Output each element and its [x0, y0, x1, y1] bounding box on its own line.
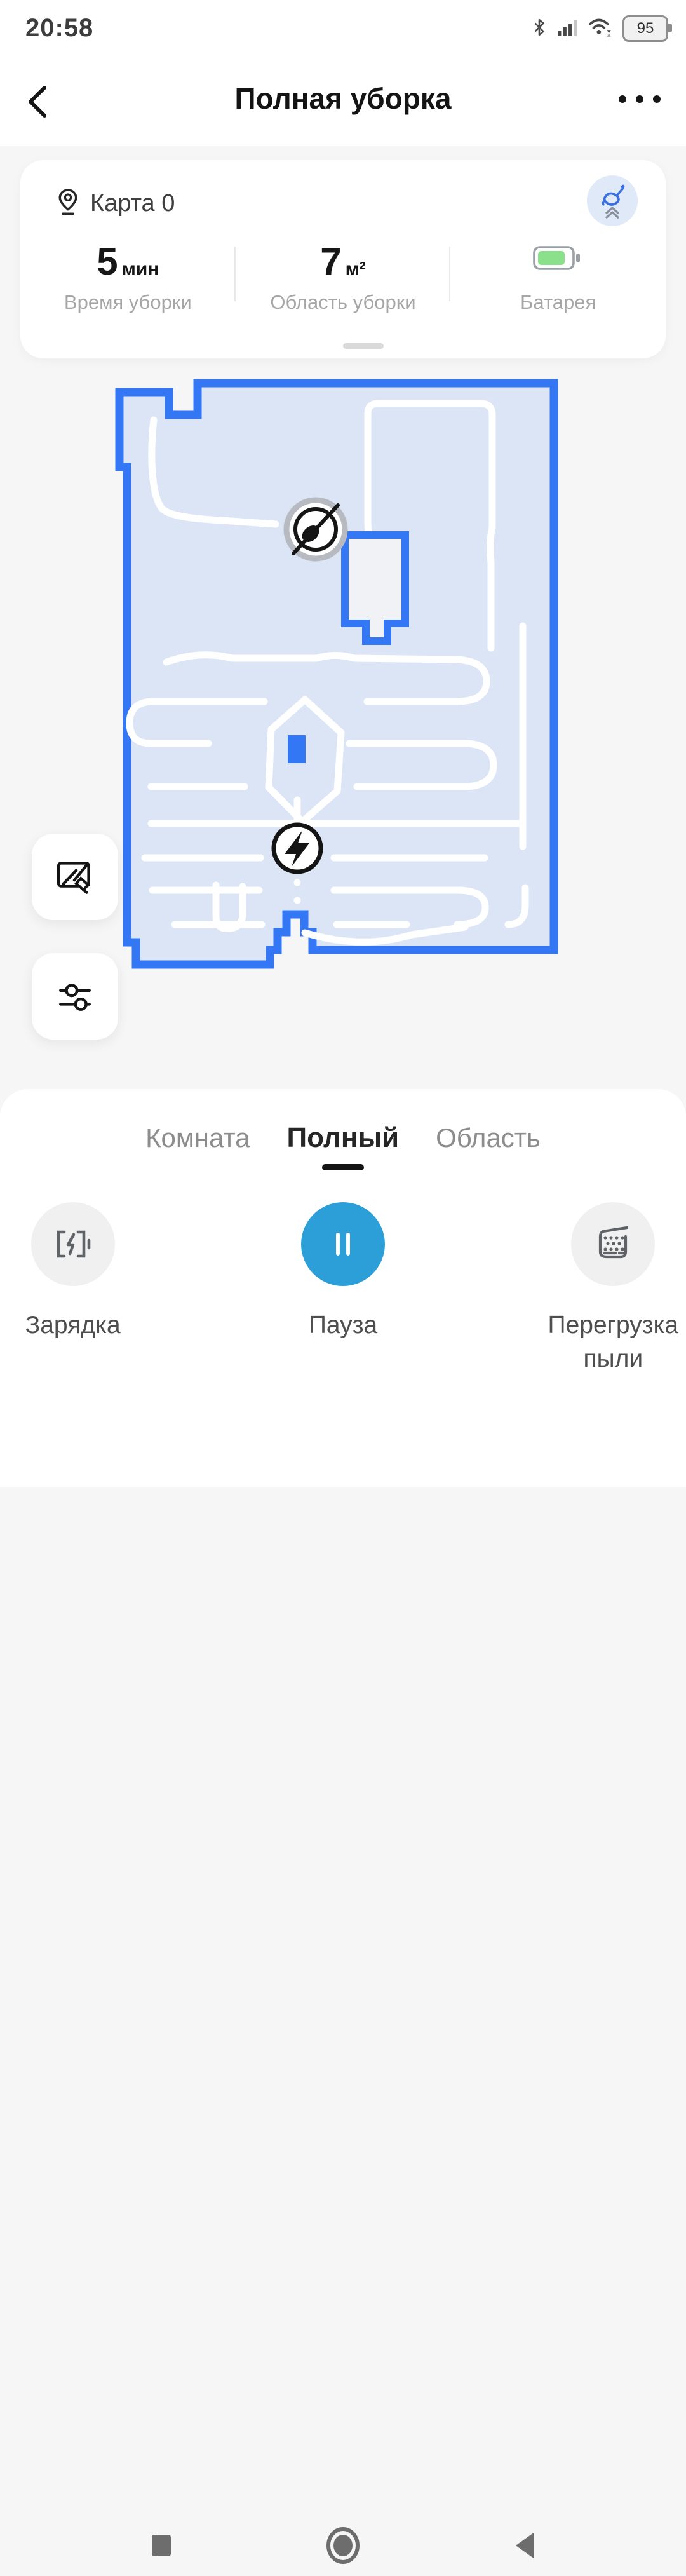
clock: 20:58: [25, 14, 93, 43]
android-navbar: [0, 2515, 686, 2576]
signal-icon: [556, 17, 579, 41]
page-title: Полная уборка: [0, 81, 686, 116]
battery-label: Батарея: [450, 291, 666, 314]
stat-battery: Батарея: [450, 235, 666, 314]
mode-tabs: Комната Полный Область: [0, 1122, 686, 1170]
cleaning-stats: 5 мин Время уборки 7 м² Область уборки: [20, 235, 666, 314]
area-label: Область уборки: [236, 291, 451, 314]
map-edit-button[interactable]: [32, 834, 118, 920]
robot-marker: [286, 500, 345, 559]
map-name[interactable]: Карта 0: [90, 190, 175, 217]
action-buttons-row: Зарядка Пауза: [0, 1202, 686, 1376]
charging-dock-marker: [274, 825, 321, 872]
cleaning-map[interactable]: [114, 378, 559, 975]
charge-battery-icon: [50, 1223, 96, 1265]
dust-collect-label: Перегрузка пыли: [541, 1309, 686, 1376]
stat-area: 7 м² Область уборки: [236, 235, 451, 314]
time-value: 5: [97, 243, 118, 281]
time-label: Время уборки: [20, 291, 236, 314]
map-island-obstacle: [345, 535, 405, 641]
pause-button[interactable]: [301, 1202, 385, 1286]
charge-button[interactable]: [31, 1202, 115, 1286]
mop-lift-icon: [594, 182, 631, 220]
dust-collector-icon: [590, 1223, 636, 1266]
back-nav-button[interactable]: [502, 2523, 547, 2568]
top-white-area: 20:58: [0, 0, 686, 146]
map-settings-button[interactable]: [32, 953, 118, 1040]
more-menu-button[interactable]: [619, 95, 661, 103]
charge-action: Зарядка: [0, 1202, 145, 1376]
map-info-card: Карта 0 5 мин Время уборки 7 м² Область …: [20, 160, 666, 358]
tab-room[interactable]: Комната: [145, 1123, 250, 1170]
recents-button[interactable]: [139, 2523, 184, 2568]
dust-collect-action: Перегрузка пыли: [541, 1202, 686, 1376]
map-edit-icon: [54, 857, 96, 897]
pause-label: Пауза: [309, 1309, 377, 1343]
pause-action: Пауза: [270, 1202, 415, 1376]
battery-percent: 95: [637, 20, 654, 37]
sliders-icon: [54, 976, 96, 1017]
area-unit: м²: [346, 257, 366, 281]
control-bottom-sheet: Комната Полный Область Зарядка: [0, 1089, 686, 1487]
status-bar: 20:58: [0, 0, 686, 57]
time-unit: мин: [122, 257, 159, 281]
tab-area[interactable]: Область: [436, 1123, 541, 1170]
pause-icon: [324, 1225, 362, 1263]
tab-full[interactable]: Полный: [287, 1122, 400, 1170]
card-drag-handle[interactable]: [343, 343, 384, 349]
charge-label: Зарядка: [25, 1309, 121, 1343]
mop-lift-status-chip[interactable]: [587, 175, 638, 226]
battery-green-icon: [450, 235, 666, 281]
stat-time: 5 мин Время уборки: [20, 235, 236, 314]
home-button[interactable]: [321, 2523, 365, 2568]
wifi-icon: [588, 16, 614, 42]
location-pin-icon: [56, 188, 80, 219]
dust-collect-button[interactable]: [571, 1202, 655, 1286]
blue-square-marker: [288, 735, 306, 763]
area-value: 7: [320, 243, 341, 281]
battery-icon: 95: [622, 15, 668, 42]
bluetooth-icon: [531, 17, 548, 41]
